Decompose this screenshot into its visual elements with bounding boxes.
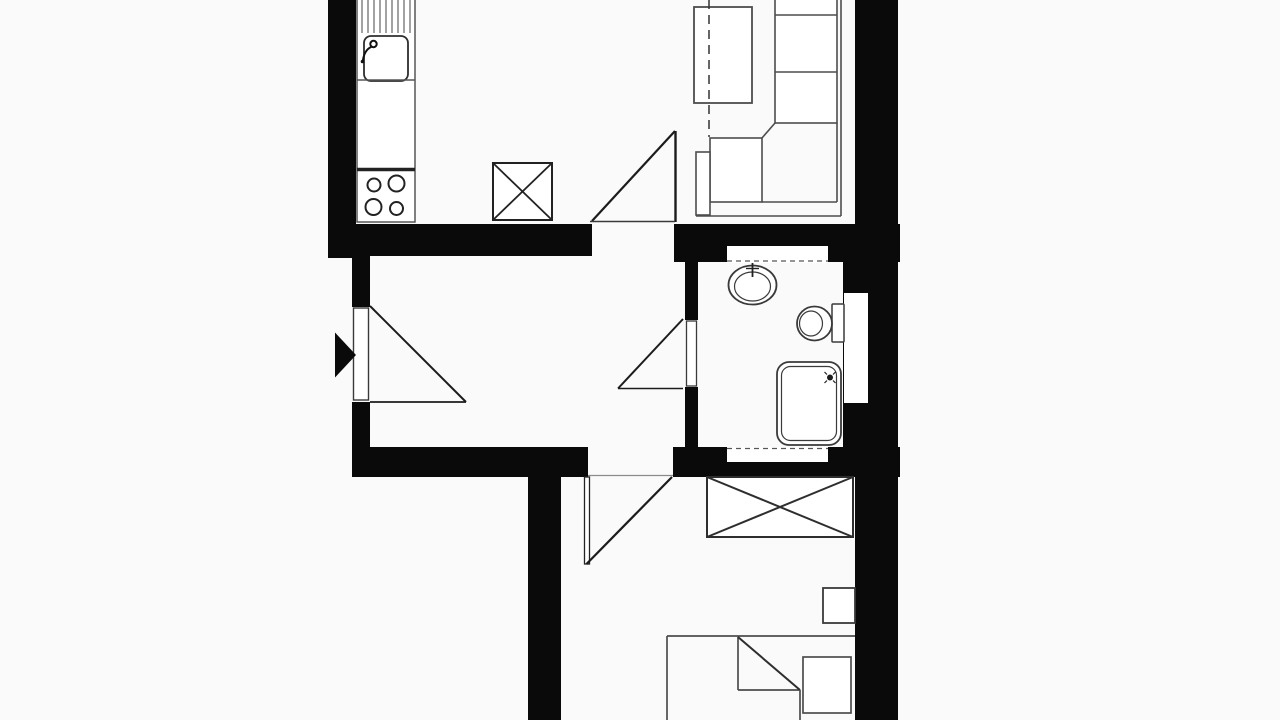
page-background (0, 0, 1280, 720)
stove-burner-1 (368, 179, 381, 192)
kitchen-counter (357, 0, 415, 222)
stove-burner-4 (390, 202, 403, 215)
bathroom-bottom-niche (727, 447, 828, 462)
bedroom-door-leaf (585, 477, 590, 564)
nightstand (823, 588, 855, 623)
stove-burner-2 (389, 176, 405, 192)
sofa-chaise-cushion (710, 138, 762, 202)
bathroom-door-leaf (687, 321, 697, 386)
bedroom-right-wall (855, 450, 898, 720)
bathroom-side-recess (844, 293, 868, 403)
dining-table (694, 7, 752, 103)
toilet-bowl-inner (800, 311, 823, 336)
hall-left-wall-upper (352, 256, 370, 307)
sofa-back-cushions (775, 0, 837, 123)
hall-left-wall-lower (352, 402, 370, 447)
top-wall-left-of-living-door (328, 224, 592, 256)
floor-plan (0, 0, 1280, 720)
bed-pillow (803, 657, 851, 713)
bottom-wall-left-of-bedroom-door (352, 447, 588, 477)
sofa-armrest (696, 152, 710, 215)
shower-head (827, 375, 833, 381)
kitchen-left-wall (328, 0, 356, 258)
bathroom-left-wall-lower (685, 387, 698, 450)
bathroom-left-wall-upper (685, 256, 698, 320)
entrance-door-leaf (354, 308, 369, 400)
toilet-cistern (832, 304, 844, 342)
corridor-left-wall (528, 477, 561, 720)
stove-burner-3 (366, 199, 382, 215)
living-right-wall (855, 0, 898, 240)
floor-plan-canvas (0, 0, 1280, 720)
